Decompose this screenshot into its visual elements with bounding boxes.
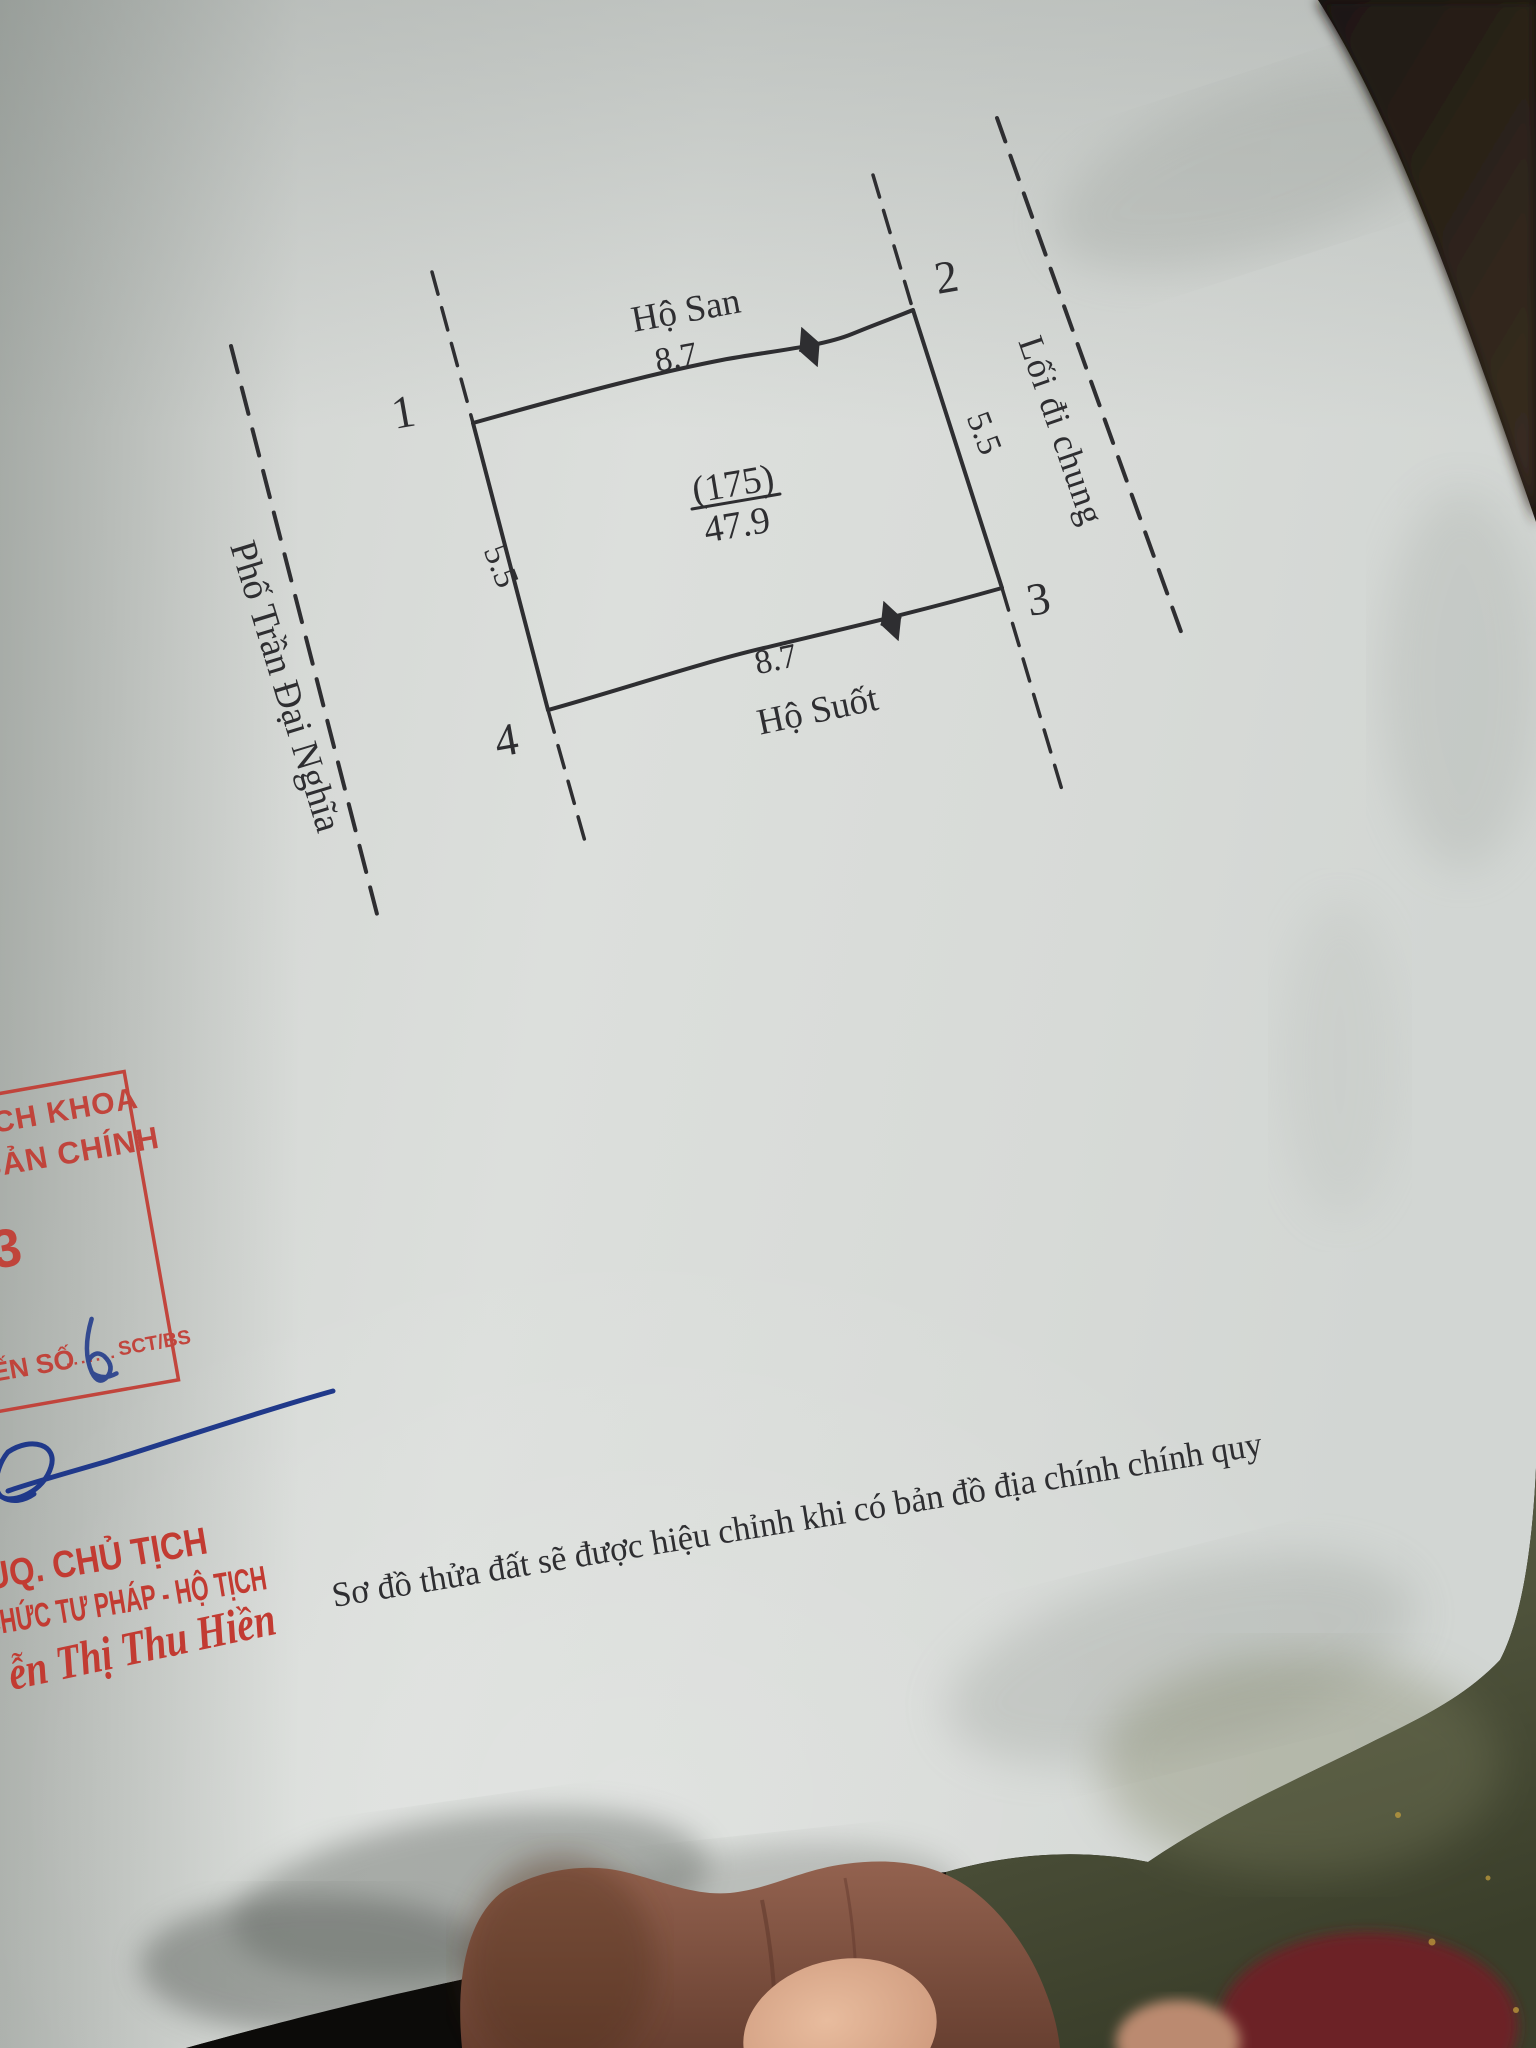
backdrop-olive-sheen (1100, 1655, 1500, 1875)
dim-top-label: 8.7 (652, 336, 701, 380)
photo-of-document: 1 2 3 4 Hộ San 8.7 (175) 47.9 8.7 Hộ Suố… (0, 0, 1536, 2048)
